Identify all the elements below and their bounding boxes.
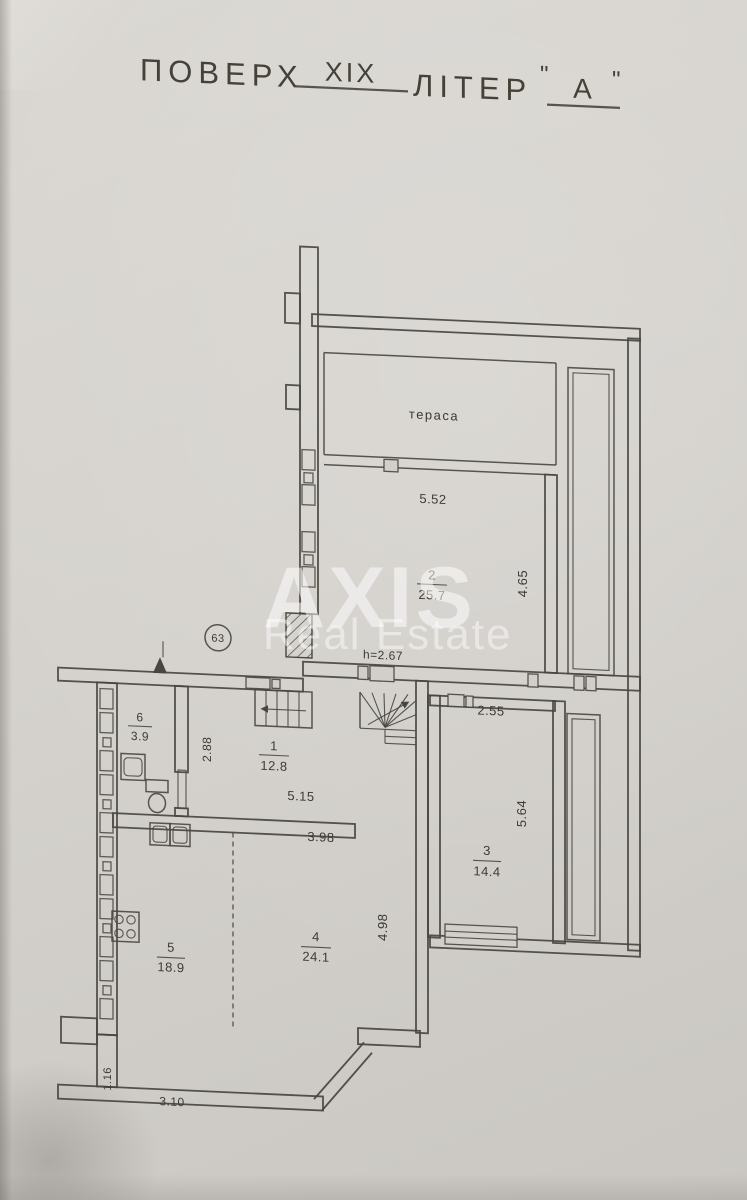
floor-label: ПОВЕРХ xyxy=(140,52,304,94)
door-icon xyxy=(272,679,280,688)
room-1-hall: 1 12.8 2.88 5.15 xyxy=(200,671,428,1033)
room-6-wc: 6 3.9 xyxy=(121,639,188,816)
door-icon xyxy=(358,666,368,679)
letter-quote-close: " xyxy=(612,67,622,94)
door-icon xyxy=(246,677,270,689)
door-leaf-icon xyxy=(178,770,186,808)
room-5-kitchen: 5 18.9 1.16 3.10 xyxy=(100,689,355,1117)
room6-area: 3.9 xyxy=(131,729,149,744)
door-icon xyxy=(448,694,464,707)
dim-room2-depth: 4.65 xyxy=(515,570,530,598)
letter-value: А xyxy=(573,73,593,105)
dim-hall-width: 5.15 xyxy=(287,788,314,804)
room1-number: 1 xyxy=(270,738,278,753)
scanned-floor-plan-photo: ПОВЕРХ XIX ЛІТЕР " А " xyxy=(0,0,747,1200)
room4-number: 4 xyxy=(312,929,320,944)
dim-room3-depth: 5.64 xyxy=(514,799,529,827)
dim-passage-width: 1.16 xyxy=(102,1067,114,1091)
door-icon xyxy=(370,666,394,682)
room5-number: 5 xyxy=(167,940,175,955)
stairs-winder-icon xyxy=(360,692,416,745)
terrace-door-icon xyxy=(384,459,398,472)
room2-number: 2 xyxy=(428,567,436,582)
stairs-straight-icon xyxy=(255,689,312,728)
dim-hall-depth: 2.88 xyxy=(200,736,214,762)
terrace-label: тераса xyxy=(409,406,459,423)
dim-room3-width: 2.55 xyxy=(477,702,504,718)
door-icon xyxy=(574,676,584,690)
kitchen-sink-icon xyxy=(150,823,190,847)
right-gallery-strips xyxy=(567,368,614,942)
door-icon xyxy=(586,676,596,690)
dim-room4-width: 3.98 xyxy=(307,829,334,845)
room2-window-panes xyxy=(302,450,315,588)
unit-number: 63 xyxy=(211,633,224,646)
door-icon xyxy=(466,696,473,707)
exterior-walls xyxy=(58,236,640,1125)
floor-plan-drawing: ПОВЕРХ XIX ЛІТЕР " А " xyxy=(0,0,747,1200)
toilet-icon xyxy=(146,780,168,813)
stove-icon xyxy=(112,911,139,942)
letter-label: ЛІТЕР xyxy=(413,68,532,108)
terrace: тераса xyxy=(324,353,556,479)
room1-area: 12.8 xyxy=(260,758,287,774)
unit-number-badge: 63 xyxy=(205,624,231,651)
washbasin-icon xyxy=(121,753,145,780)
letter-value-underline xyxy=(547,105,620,108)
west-window-panes xyxy=(100,689,113,1020)
room5-area: 18.9 xyxy=(157,959,184,975)
vent-shaft-icon xyxy=(286,613,312,658)
dim-room2-width: 5.52 xyxy=(419,491,446,507)
vent-marker-icon xyxy=(153,657,167,674)
title-block: ПОВЕРХ XIX ЛІТЕР " А " xyxy=(140,43,622,112)
door-icon xyxy=(528,674,538,687)
dim-bottom-width: 3.10 xyxy=(159,1094,184,1109)
room6-number: 6 xyxy=(136,710,143,724)
room3-window-icon xyxy=(445,924,517,947)
letter-quote-open: " xyxy=(540,61,550,88)
dim-room4-depth: 4.98 xyxy=(375,913,390,941)
room-4-living: 3.98 4.98 4 24.1 xyxy=(233,825,390,1035)
room-2: 5.52 2 25.7 4.65 h=2.67 xyxy=(286,449,557,673)
ceiling-height-note: h=2.67 xyxy=(363,647,403,663)
room3-area: 14.4 xyxy=(473,863,500,879)
room-3: 2.55 5.64 3 14.4 xyxy=(428,695,565,949)
room4-area: 24.1 xyxy=(302,949,329,965)
room3-number: 3 xyxy=(483,843,491,858)
floor-value: XIX xyxy=(325,57,378,89)
room2-area: 25.7 xyxy=(418,587,445,603)
